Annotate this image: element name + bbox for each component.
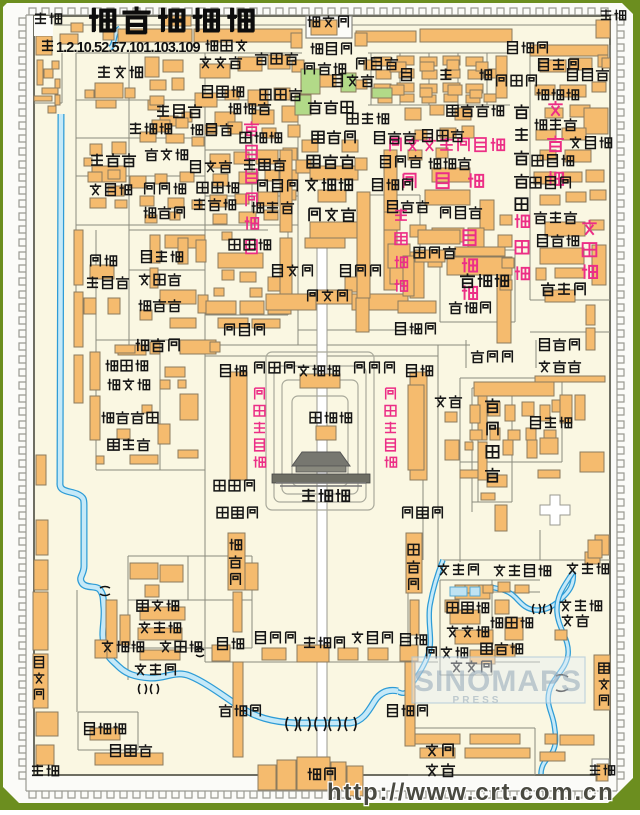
svg-text:1.2.10.52.57.101.103.109: 1.2.10.52.57.101.103.109: [56, 40, 201, 56]
svg-text:PRESS: PRESS: [453, 695, 502, 706]
svg-text:SINOMAPS: SINOMAPS: [414, 665, 582, 698]
svg-text:http://www.crt.com.cn: http://www.crt.com.cn: [327, 779, 615, 806]
